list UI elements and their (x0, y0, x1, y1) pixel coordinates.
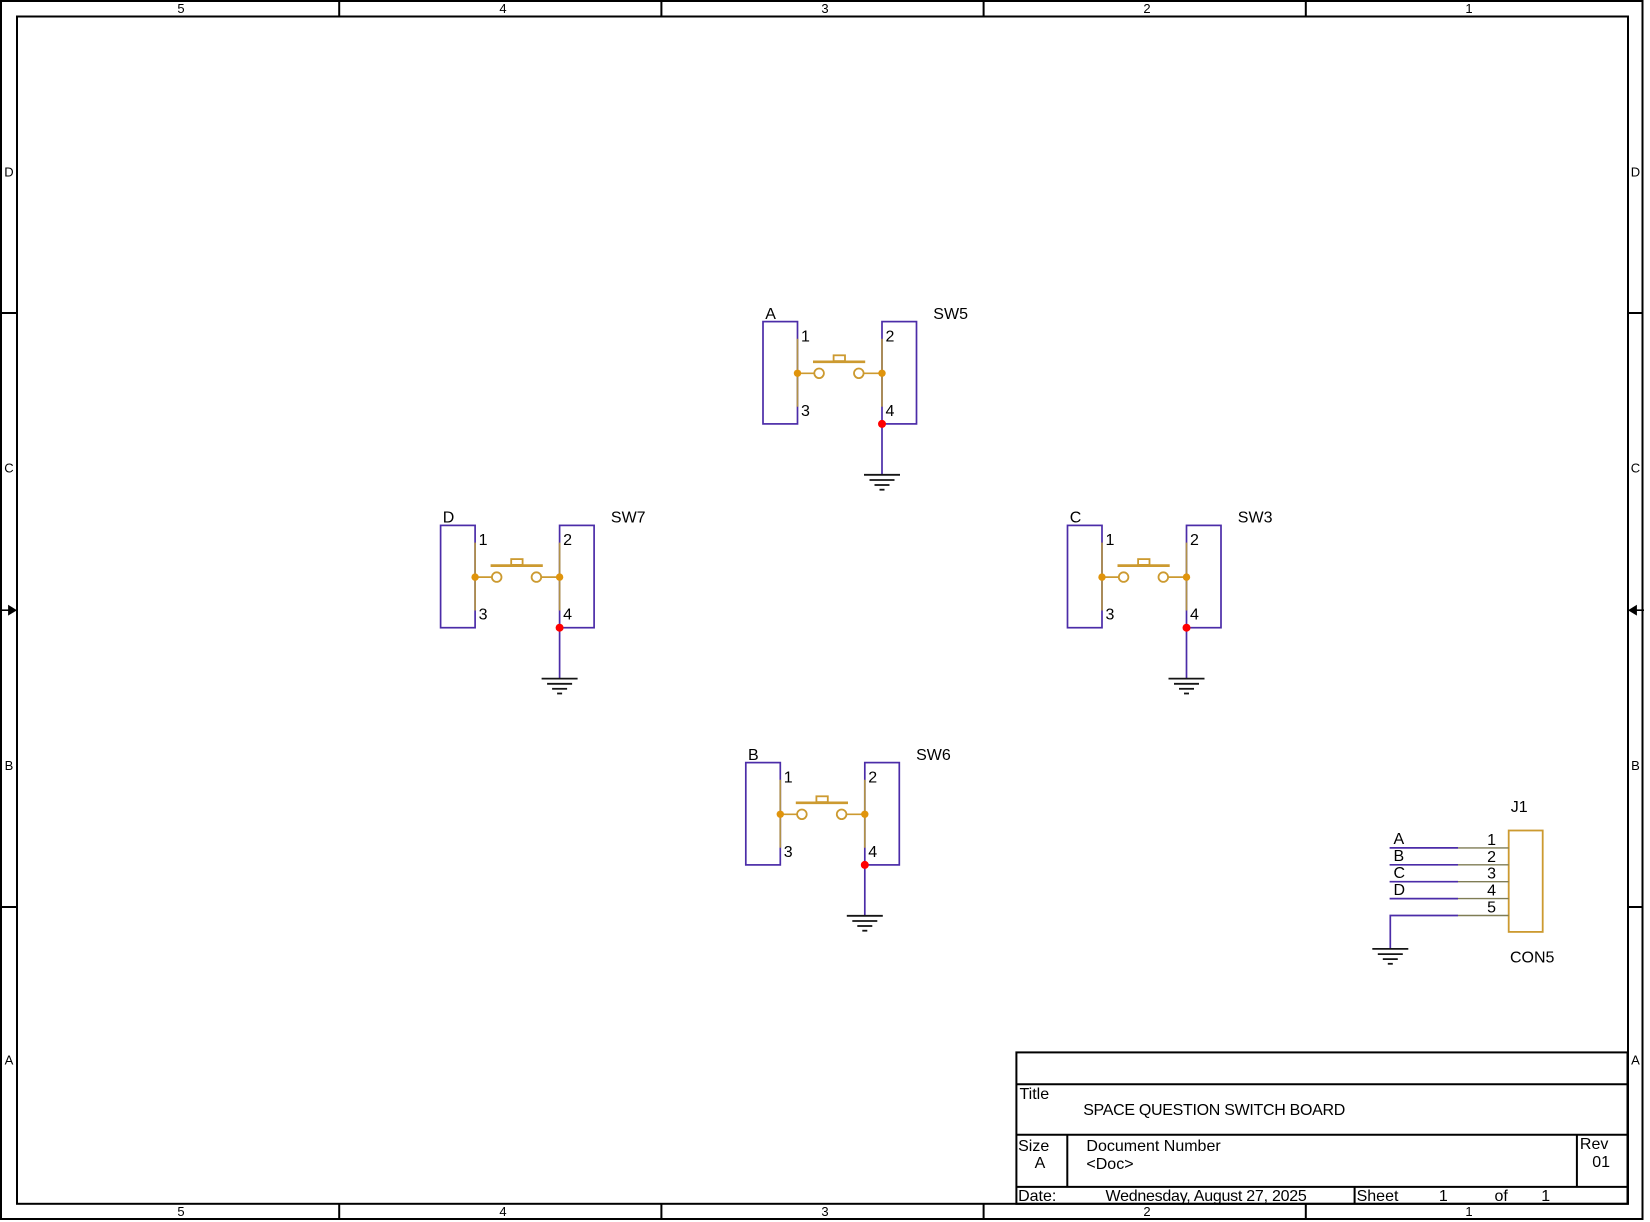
svg-text:3: 3 (821, 1204, 828, 1219)
svg-text:1: 1 (801, 328, 810, 345)
svg-text:A: A (1035, 1155, 1046, 1172)
svg-text:B: B (5, 758, 14, 773)
svg-text:Wednesday, August 27, 2025: Wednesday, August 27, 2025 (1106, 1188, 1307, 1205)
svg-text:3: 3 (1487, 866, 1496, 883)
svg-text:Size: Size (1018, 1138, 1049, 1155)
svg-text:1: 1 (1541, 1188, 1550, 1205)
svg-text:A: A (1394, 831, 1405, 848)
svg-text:CON5: CON5 (1510, 950, 1555, 967)
svg-text:J1: J1 (1511, 799, 1528, 816)
svg-text:SPACE QUESTION SWITCH BOARD: SPACE QUESTION SWITCH BOARD (1083, 1102, 1345, 1119)
svg-text:3: 3 (801, 403, 810, 420)
svg-text:<Doc>: <Doc> (1086, 1156, 1133, 1173)
svg-text:2: 2 (563, 532, 572, 549)
svg-text:4: 4 (868, 844, 877, 861)
svg-text:1: 1 (784, 769, 793, 786)
svg-text:D: D (1394, 882, 1406, 899)
svg-text:C: C (4, 461, 13, 476)
svg-text:5: 5 (1487, 900, 1496, 917)
svg-text:C: C (1070, 510, 1082, 527)
svg-text:4: 4 (1190, 607, 1199, 624)
svg-text:4: 4 (563, 607, 572, 624)
svg-text:A: A (765, 306, 776, 323)
svg-text:1: 1 (1487, 832, 1496, 849)
svg-text:2: 2 (886, 328, 895, 345)
svg-text:D: D (443, 510, 455, 527)
svg-text:2: 2 (868, 769, 877, 786)
svg-text:D: D (4, 165, 13, 180)
svg-text:4: 4 (499, 1, 506, 16)
svg-text:SW5: SW5 (933, 306, 968, 323)
svg-text:SW7: SW7 (611, 510, 646, 527)
svg-text:of: of (1495, 1188, 1509, 1205)
svg-text:Rev: Rev (1580, 1136, 1608, 1153)
svg-text:C: C (1631, 461, 1640, 476)
svg-text:SW3: SW3 (1238, 510, 1273, 527)
svg-text:3: 3 (821, 1, 828, 16)
svg-text:C: C (1394, 865, 1406, 882)
svg-text:4: 4 (499, 1204, 506, 1219)
svg-text:B: B (1394, 848, 1405, 865)
svg-text:1: 1 (1439, 1188, 1448, 1205)
svg-text:D: D (1631, 165, 1640, 180)
svg-text:2: 2 (1190, 532, 1199, 549)
svg-text:3: 3 (1106, 607, 1115, 624)
svg-text:A: A (5, 1053, 14, 1068)
svg-text:5: 5 (177, 1204, 184, 1219)
svg-text:Title: Title (1020, 1086, 1050, 1103)
svg-text:4: 4 (1487, 883, 1496, 900)
svg-text:A: A (1631, 1053, 1640, 1068)
svg-text:Sheet: Sheet (1357, 1188, 1399, 1205)
svg-text:1: 1 (479, 532, 488, 549)
svg-text:3: 3 (784, 844, 793, 861)
svg-text:1: 1 (1465, 1204, 1472, 1219)
svg-text:4: 4 (886, 403, 895, 420)
svg-text:B: B (748, 747, 759, 764)
svg-text:1: 1 (1465, 1, 1472, 16)
svg-text:01: 01 (1592, 1154, 1610, 1171)
svg-text:2: 2 (1143, 1204, 1150, 1219)
svg-text:2: 2 (1143, 1, 1150, 16)
svg-text:2: 2 (1487, 849, 1496, 866)
svg-text:1: 1 (1106, 532, 1115, 549)
svg-text:3: 3 (479, 607, 488, 624)
svg-text:5: 5 (177, 1, 184, 16)
svg-text:Date:: Date: (1018, 1188, 1056, 1205)
svg-text:Document Number: Document Number (1086, 1138, 1221, 1155)
svg-text:B: B (1631, 758, 1640, 773)
svg-text:SW6: SW6 (916, 747, 951, 764)
